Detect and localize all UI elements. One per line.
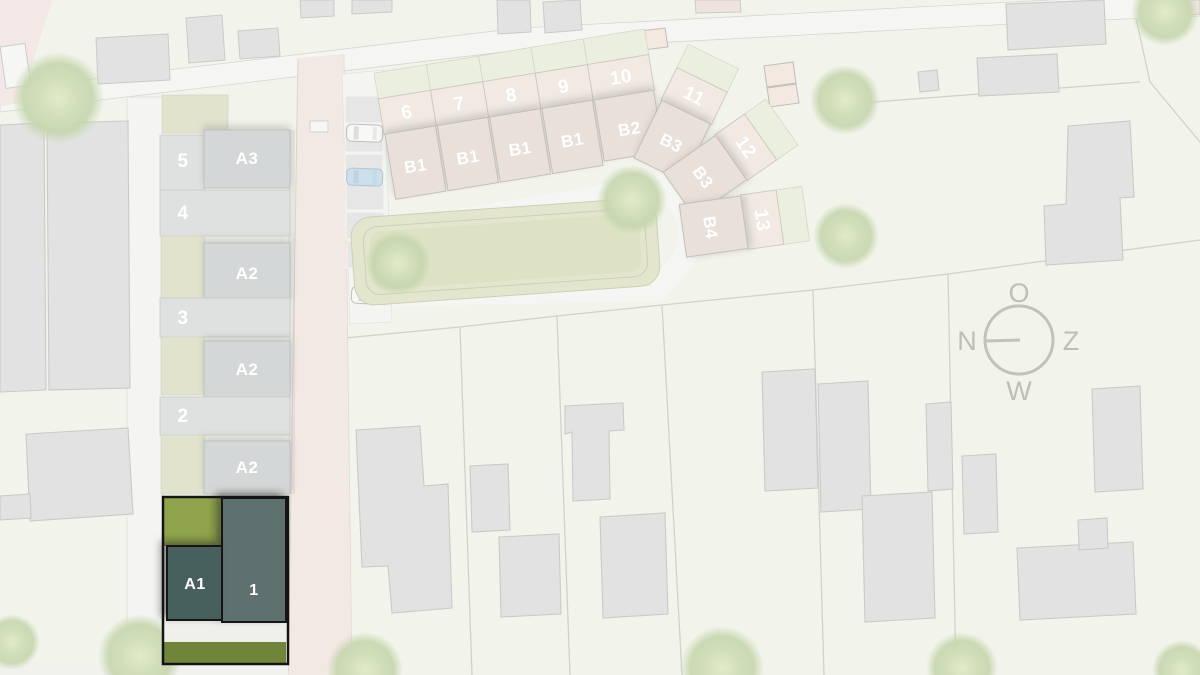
plot-1-number: 1 xyxy=(249,582,258,599)
site-plan-canvas: 6 7 8 9 10 B1 B1 B1 B1 B2 11 B3 12 B3 xyxy=(0,0,1200,675)
house-a1-label: A1 xyxy=(184,576,205,593)
house-1[interactable] xyxy=(222,498,286,622)
plot-1-grass-top xyxy=(164,498,222,546)
plot-1-highlighted[interactable]: A1 1 xyxy=(163,497,288,664)
plot-1-grass-bottom xyxy=(164,642,286,664)
plot-1-driveway xyxy=(164,622,286,642)
